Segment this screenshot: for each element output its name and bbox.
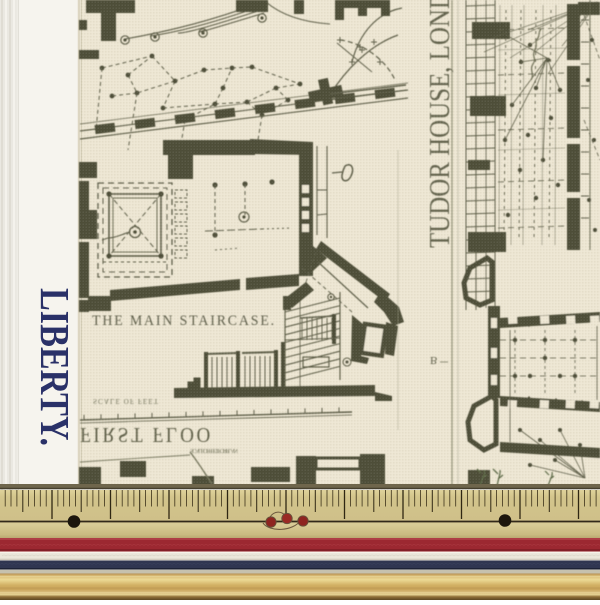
svg-text:LIBERTY.: LIBERTY. bbox=[32, 288, 78, 446]
